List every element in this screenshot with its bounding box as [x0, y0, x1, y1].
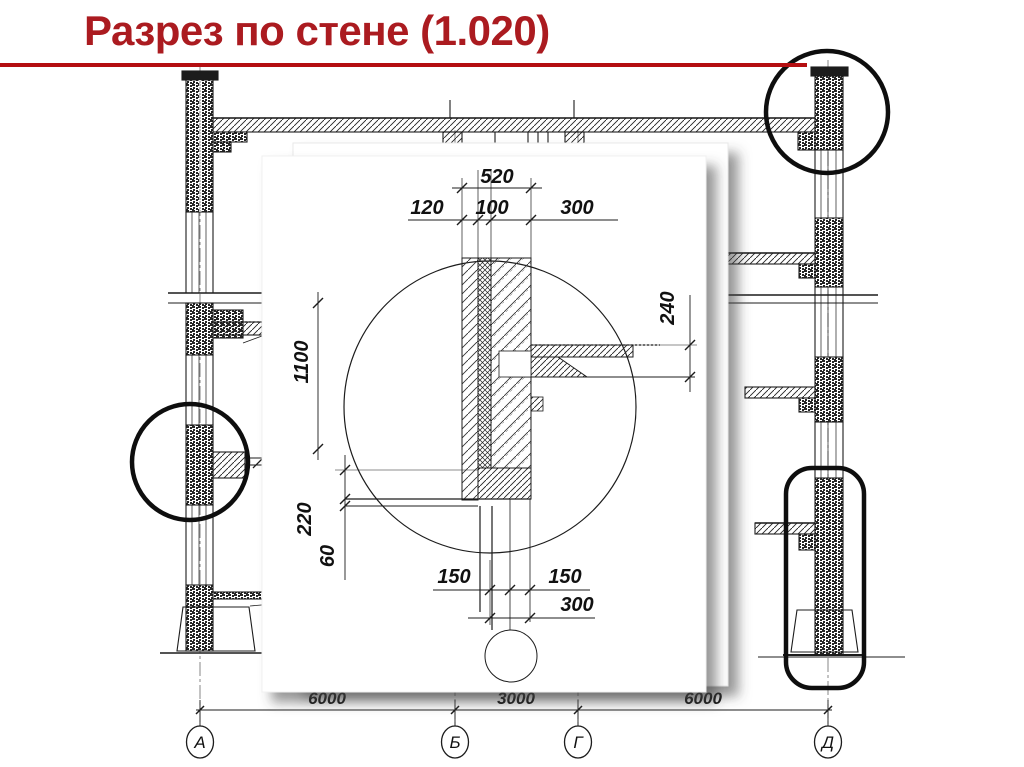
right-wall: [722, 67, 905, 657]
dim-60: 60: [317, 545, 339, 567]
left-wall-coping: [182, 71, 218, 80]
axis-label-a: А: [193, 733, 205, 752]
dim-220: 220: [294, 502, 316, 536]
dim-520: 520: [480, 166, 513, 188]
section-drawing: 6000 3000 6000 А Б Г Д: [0, 0, 1024, 767]
dim-300-top: 300: [560, 197, 593, 219]
dim-150-right: 150: [548, 566, 581, 588]
dim-240: 240: [657, 291, 679, 325]
dim-300-bottom: 300: [560, 594, 593, 616]
dim-150-left: 150: [437, 566, 470, 588]
dim-1100: 1100: [291, 340, 313, 383]
slide: 6000 3000 6000 А Б Г Д: [0, 0, 1024, 767]
dim-100: 100: [475, 197, 508, 219]
detail-wall-layers: [462, 258, 531, 500]
title-rule: [0, 63, 807, 67]
axis-label-d: Д: [820, 733, 834, 752]
slide-title: Разрез по стене (1.020): [84, 7, 550, 54]
axis-markers: [187, 726, 842, 758]
axis-marker-labels: А Б Г Д: [193, 733, 834, 752]
axis-label-b: Б: [449, 733, 460, 752]
right-wall-coping: [811, 67, 848, 76]
dim-120: 120: [410, 197, 443, 219]
